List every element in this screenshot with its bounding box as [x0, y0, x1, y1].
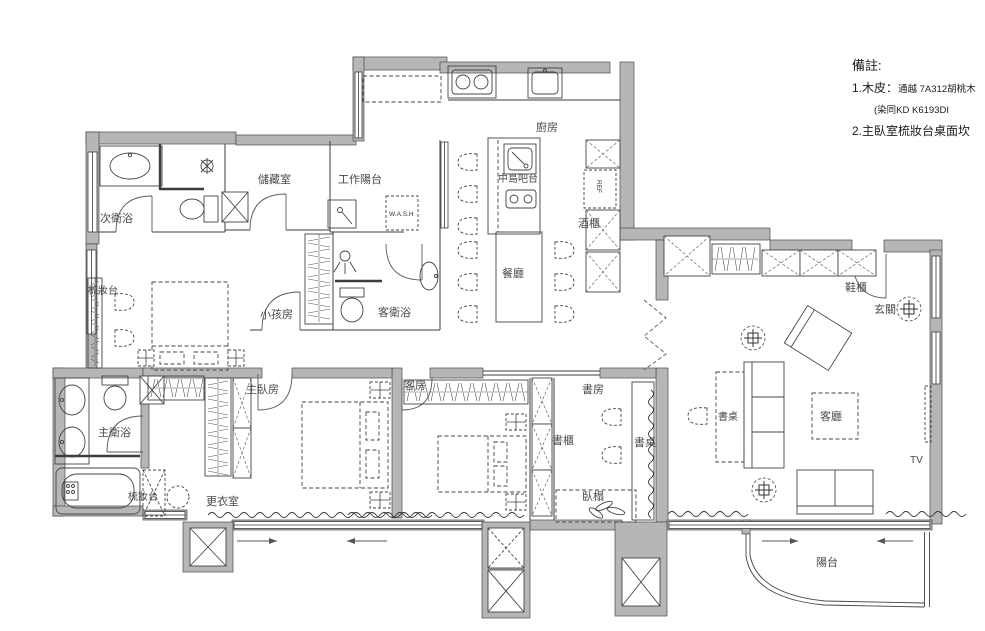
- chair-symbol: [602, 409, 621, 426]
- label-desk-study: 書桌: [634, 435, 656, 449]
- toilet-bowl: [341, 298, 363, 322]
- label-fridge: REF: [595, 180, 602, 193]
- floor-plan-svg: 備註: 1.木皮： 通越 7A312胡桃木 (染同KD K6193DI 2.主臥…: [0, 0, 985, 631]
- label-storage: 儲藏室: [258, 172, 291, 186]
- notes-heading: 備註:: [852, 58, 882, 73]
- floor-plan: 備註: 1.木皮： 通越 7A312胡桃木 (染同KD K6193DI 2.主臥…: [0, 0, 985, 631]
- folding-door: [644, 300, 666, 370]
- sofa-3seat: [744, 362, 784, 468]
- label-washer: W.A.S.H: [389, 211, 414, 218]
- island-sink: [504, 144, 536, 174]
- guest-bed: [438, 436, 526, 492]
- balcony-rail: [746, 534, 924, 607]
- armchair: [784, 306, 851, 371]
- notes-line1a: 1.木皮：: [852, 81, 898, 95]
- upper-cabinet: [363, 76, 441, 102]
- master-bed: [302, 402, 388, 488]
- label-island-bar: 中島吧台: [498, 172, 538, 185]
- label-tv: TV: [910, 455, 923, 466]
- label-desk-living: 書桌: [718, 410, 738, 423]
- vanity-stool: [167, 486, 189, 508]
- chair-symbol: [555, 274, 574, 291]
- symbols-layer: [88, 140, 966, 544]
- label-bookcase: 書櫃: [552, 433, 574, 447]
- sofa-2seat: [797, 470, 873, 514]
- label-foyer: 玄關: [874, 302, 896, 316]
- toilet-tank: [204, 196, 218, 222]
- chair-symbol: [115, 330, 134, 347]
- label-master-bath: 主衛浴: [98, 426, 131, 439]
- label-master-bedroom: 主臥房: [246, 383, 279, 396]
- toilet-bowl: [104, 386, 126, 410]
- curtain-symbol: [649, 390, 654, 518]
- label-guest-room: 客房: [404, 378, 426, 392]
- label-kids-room: 小孩房: [260, 308, 293, 321]
- label-study: 書房: [582, 382, 604, 396]
- label-dining: 餐廳: [502, 266, 524, 280]
- curtain-symbol: [886, 512, 966, 517]
- chair-symbol: [458, 242, 477, 259]
- chair-symbol: [688, 408, 707, 425]
- notes-line1b: 通越 7A312胡桃木: [898, 83, 976, 95]
- label-guest-bath: 客衛浴: [378, 305, 411, 319]
- chair-symbol: [458, 154, 477, 171]
- chair-symbol: [555, 306, 574, 323]
- label-shoe-cabinet: 鞋櫃: [845, 280, 867, 294]
- curtain-symbol: [668, 512, 748, 517]
- chair-symbol: [458, 186, 477, 203]
- toilet-tank: [340, 288, 364, 297]
- label-vanity-2: 梳妝台: [128, 490, 158, 503]
- counter: [100, 146, 162, 186]
- chair-symbol: [458, 218, 477, 235]
- kids-bed: [152, 282, 228, 370]
- label-kitchen: 廚房: [536, 120, 558, 134]
- notes-line2: (染同KD K6193DI: [874, 104, 949, 116]
- notes-line3: 2.主臥室梳妝台桌面坎: [852, 123, 970, 138]
- sink: [420, 262, 438, 290]
- toilet-bowl: [180, 199, 204, 219]
- label-balcony: 陽台: [816, 555, 838, 569]
- label-vanity-1: 梳妝台: [88, 284, 118, 297]
- chair-symbol: [555, 242, 574, 259]
- study-desk: [632, 382, 654, 520]
- label-secondary-bath: 次衛浴: [100, 211, 133, 225]
- label-work-balcony: 工作陽台: [338, 172, 382, 186]
- shower-head: [340, 251, 350, 261]
- chair-symbol: [602, 447, 621, 464]
- door-arc: [386, 244, 422, 280]
- door-arc: [250, 194, 286, 230]
- label-daybed: 臥榻: [582, 489, 604, 503]
- label-living-room: 客廳: [820, 409, 842, 423]
- chair-symbol: [458, 306, 477, 323]
- label-wine-cabinet: 酒櫃: [578, 216, 600, 230]
- label-walk-in-closet: 更衣室: [206, 494, 239, 508]
- chair-symbol: [458, 274, 477, 291]
